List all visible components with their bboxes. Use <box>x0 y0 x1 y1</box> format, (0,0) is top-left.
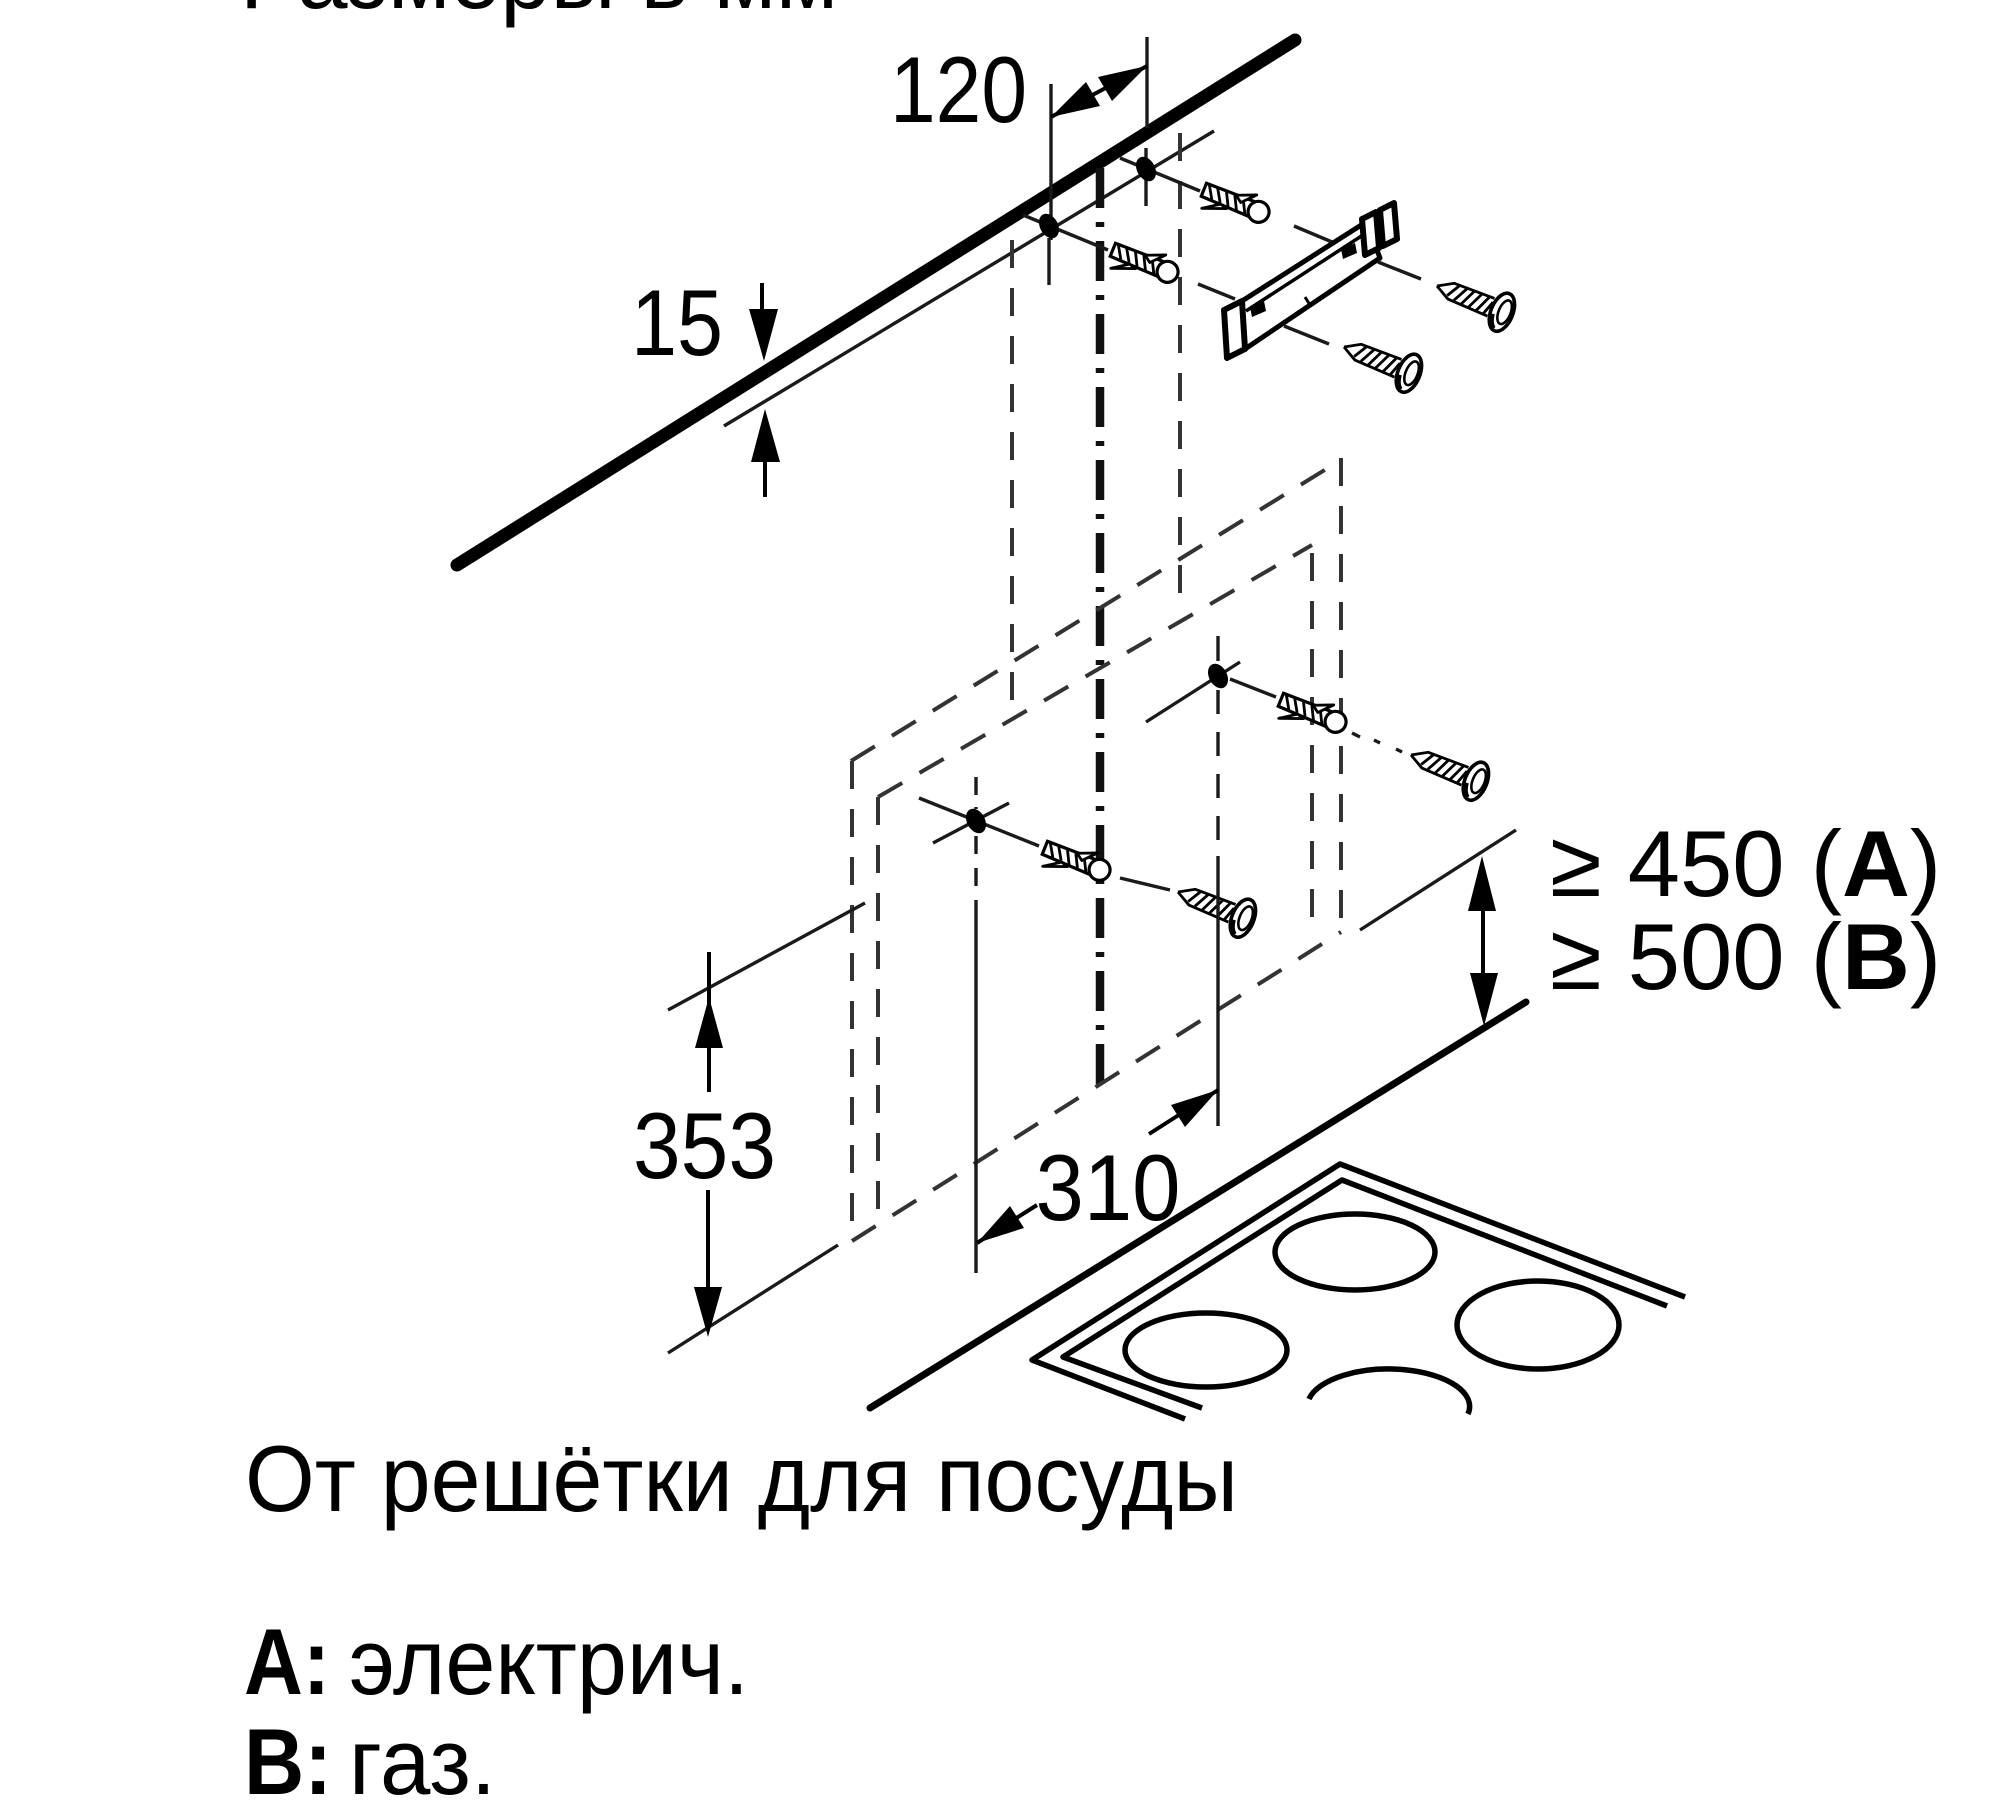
svg-text:310: 310 <box>1036 1135 1181 1240</box>
svg-text:≥ 500 (B): ≥ 500 (B) <box>1550 904 1941 1009</box>
svg-text:120: 120 <box>890 37 1027 142</box>
svg-text:15: 15 <box>631 270 723 375</box>
svg-text:В:газ.: В:газ. <box>244 1709 496 1814</box>
svg-text:353: 353 <box>633 1093 776 1198</box>
svg-text:От решётки для посуды: От решётки для посуды <box>245 1426 1238 1531</box>
svg-text:≥ 450 (A): ≥ 450 (A) <box>1550 811 1941 916</box>
svg-text:Размеры в мм: Размеры в мм <box>240 0 838 28</box>
svg-text:А:электрич.: А:электрич. <box>244 1609 749 1714</box>
